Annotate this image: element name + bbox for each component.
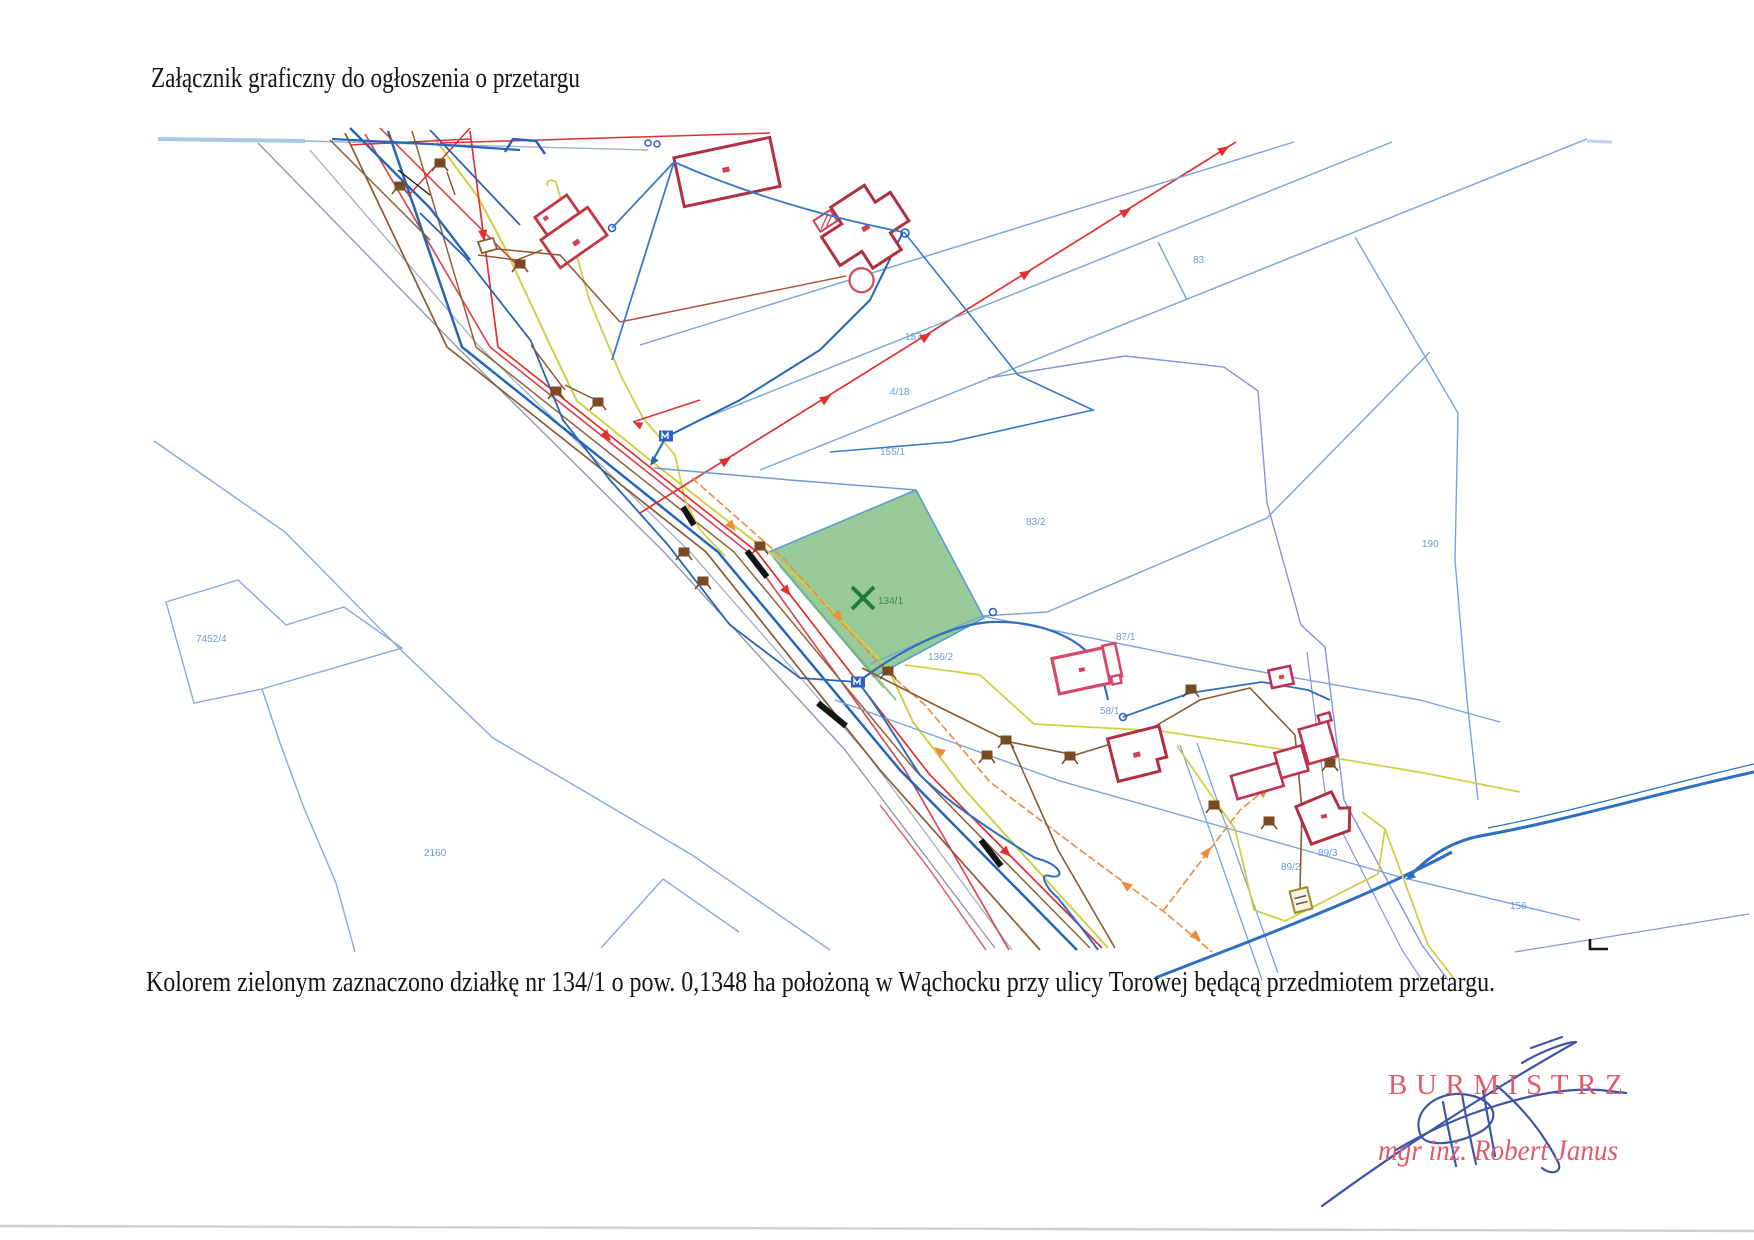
svg-text:58/1: 58/1 xyxy=(1100,706,1120,717)
svg-text:136/2: 136/2 xyxy=(928,652,953,663)
svg-text:89/2: 89/2 xyxy=(1281,862,1301,873)
svg-text:83: 83 xyxy=(1193,255,1205,266)
svg-text:156: 156 xyxy=(1510,901,1527,912)
svg-text:87/1: 87/1 xyxy=(1116,632,1136,643)
svg-text:4/18: 4/18 xyxy=(890,387,910,398)
svg-text:157: 157 xyxy=(905,332,922,343)
svg-text:89/3: 89/3 xyxy=(1318,848,1338,859)
svg-text:83/2: 83/2 xyxy=(1026,517,1046,528)
svg-text:134/1: 134/1 xyxy=(878,596,903,607)
svg-text:7452/4: 7452/4 xyxy=(196,634,227,645)
svg-text:2160: 2160 xyxy=(424,848,447,859)
svg-text:155/1: 155/1 xyxy=(880,447,905,458)
svg-text:190: 190 xyxy=(1422,539,1439,550)
